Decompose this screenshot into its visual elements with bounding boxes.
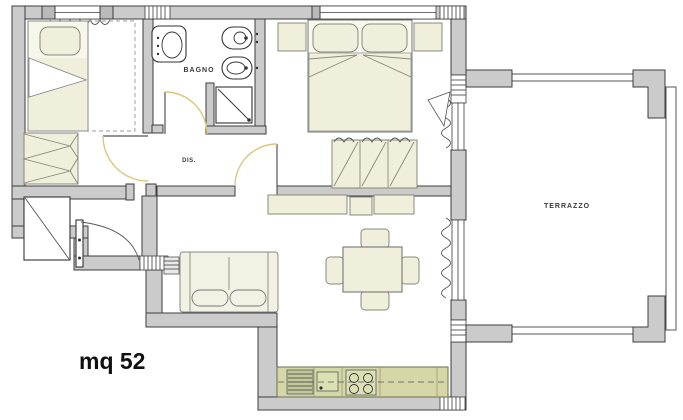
radiator (164, 257, 179, 274)
sofa (180, 252, 278, 312)
room-label-terrace: TERRAZZO (544, 203, 590, 210)
pillow (40, 27, 80, 55)
room-label-hallway: DIS. (182, 158, 196, 164)
wardrobe-bedroom1 (24, 133, 78, 184)
bathroom-fixtures (152, 26, 258, 123)
floor-plan: BAGNO DIS. TERRAZZO mq 52 (0, 0, 683, 420)
entry-closet (24, 197, 70, 260)
window-hatch-bottom (440, 397, 465, 410)
area-label: mq 52 (79, 348, 145, 374)
living-furniture (164, 195, 419, 312)
curtain-living (442, 218, 451, 298)
kitchen (277, 367, 448, 397)
dining-table (326, 229, 419, 310)
bidet (222, 57, 258, 79)
bed-extension-dashed (88, 21, 135, 131)
kitchen-sink (317, 372, 338, 391)
window-hatch-top-left (145, 6, 170, 19)
open-sash (428, 92, 450, 126)
terrace-door-bedroom2 (451, 75, 466, 103)
double-bed (308, 20, 412, 132)
toilet (222, 27, 258, 49)
sideboard (268, 195, 414, 215)
window-hatch-top-right (440, 6, 464, 19)
wardrobe-bedroom2 (332, 138, 417, 188)
door-bathroom (165, 92, 207, 134)
cooktop (346, 370, 376, 395)
sink (152, 26, 186, 62)
nightstand-right (414, 23, 442, 51)
nightstand-left (278, 23, 306, 51)
bedroom2-furniture (278, 20, 442, 188)
shower (216, 87, 252, 123)
room-label-bathroom: BAGNO (183, 67, 214, 74)
terrace-pillar-se (633, 296, 665, 342)
floor-plan-drawing: BAGNO DIS. TERRAZZO mq 52 (0, 0, 683, 420)
door-bedroom1 (103, 136, 148, 181)
terrace-pillar-ne (633, 70, 665, 118)
terrace-door-kitchen (451, 320, 466, 342)
door-living (235, 144, 277, 186)
bedroom1-furniture (24, 21, 135, 184)
